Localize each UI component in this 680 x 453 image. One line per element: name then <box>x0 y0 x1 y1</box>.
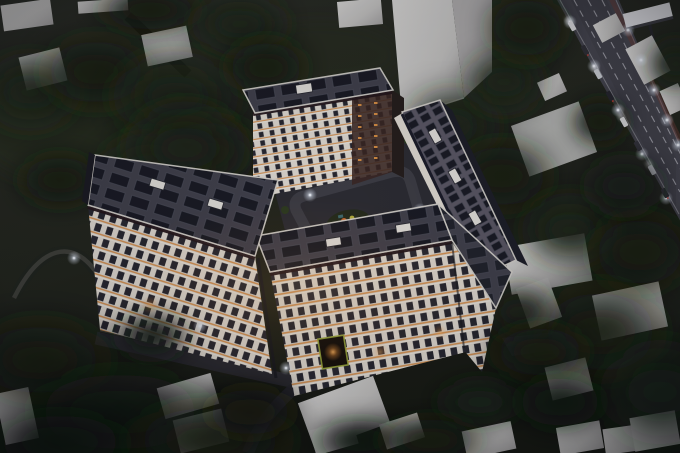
atmosphere <box>0 0 680 453</box>
vignette <box>0 0 680 453</box>
render-canvas <box>0 0 680 453</box>
aerial-render: Aerial dusk 3D rendering of a large mid-… <box>0 0 680 453</box>
